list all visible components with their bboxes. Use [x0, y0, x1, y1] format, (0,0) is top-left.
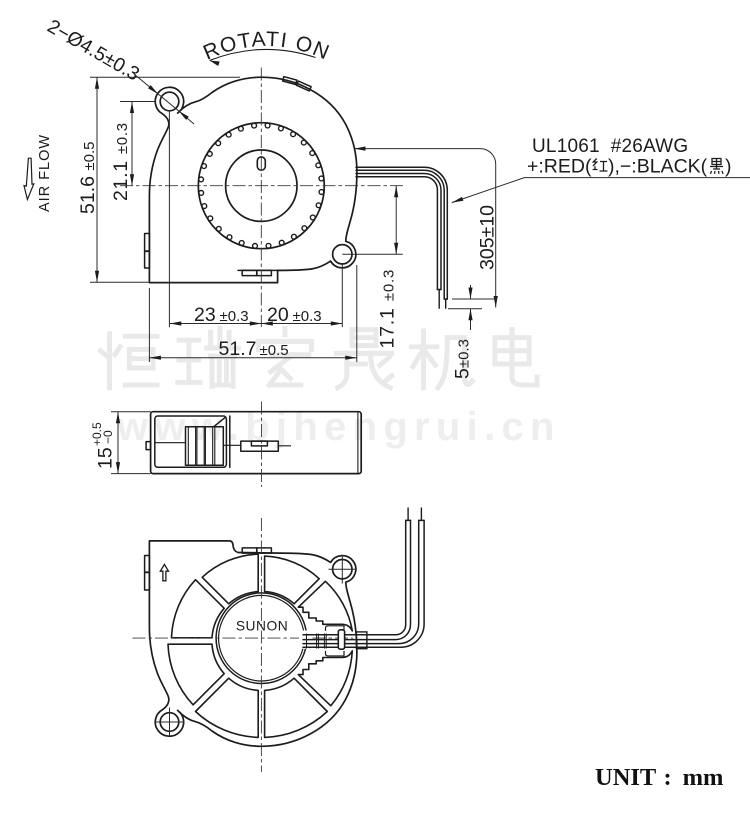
svg-text:±0.3: ±0.3: [293, 308, 322, 325]
svg-text:21.1 ±0.3: 21.1 ±0.3: [110, 122, 132, 201]
svg-text:AIR FLOW: AIR FLOW: [37, 134, 53, 212]
svg-text:15: 15: [95, 447, 117, 469]
svg-text:±0.5: ±0.5: [260, 342, 289, 359]
svg-text:+:RED(: +:RED(: [527, 156, 592, 178]
svg-text:−0: −0: [101, 430, 115, 444]
svg-text:UL1061 #26AWG: UL1061 #26AWG: [532, 136, 688, 157]
svg-text:51.6 ±0.5: 51.6 ±0.5: [77, 142, 99, 214]
svg-text:20: 20: [267, 304, 289, 326]
svg-text:): ): [725, 156, 732, 178]
svg-text:23: 23: [194, 304, 216, 326]
svg-text:±0.3: ±0.3: [220, 308, 249, 325]
svg-text:SUNON: SUNON: [236, 619, 288, 634]
svg-text:5±0.3: 5±0.3: [452, 339, 474, 379]
svg-text:51.7: 51.7: [219, 338, 257, 360]
svg-text:17.1 ±0.3: 17.1 ±0.3: [377, 269, 399, 349]
svg-text:305±10: 305±10: [477, 205, 499, 270]
svg-text:),−:BLACK(: ),−:BLACK(: [608, 156, 708, 178]
